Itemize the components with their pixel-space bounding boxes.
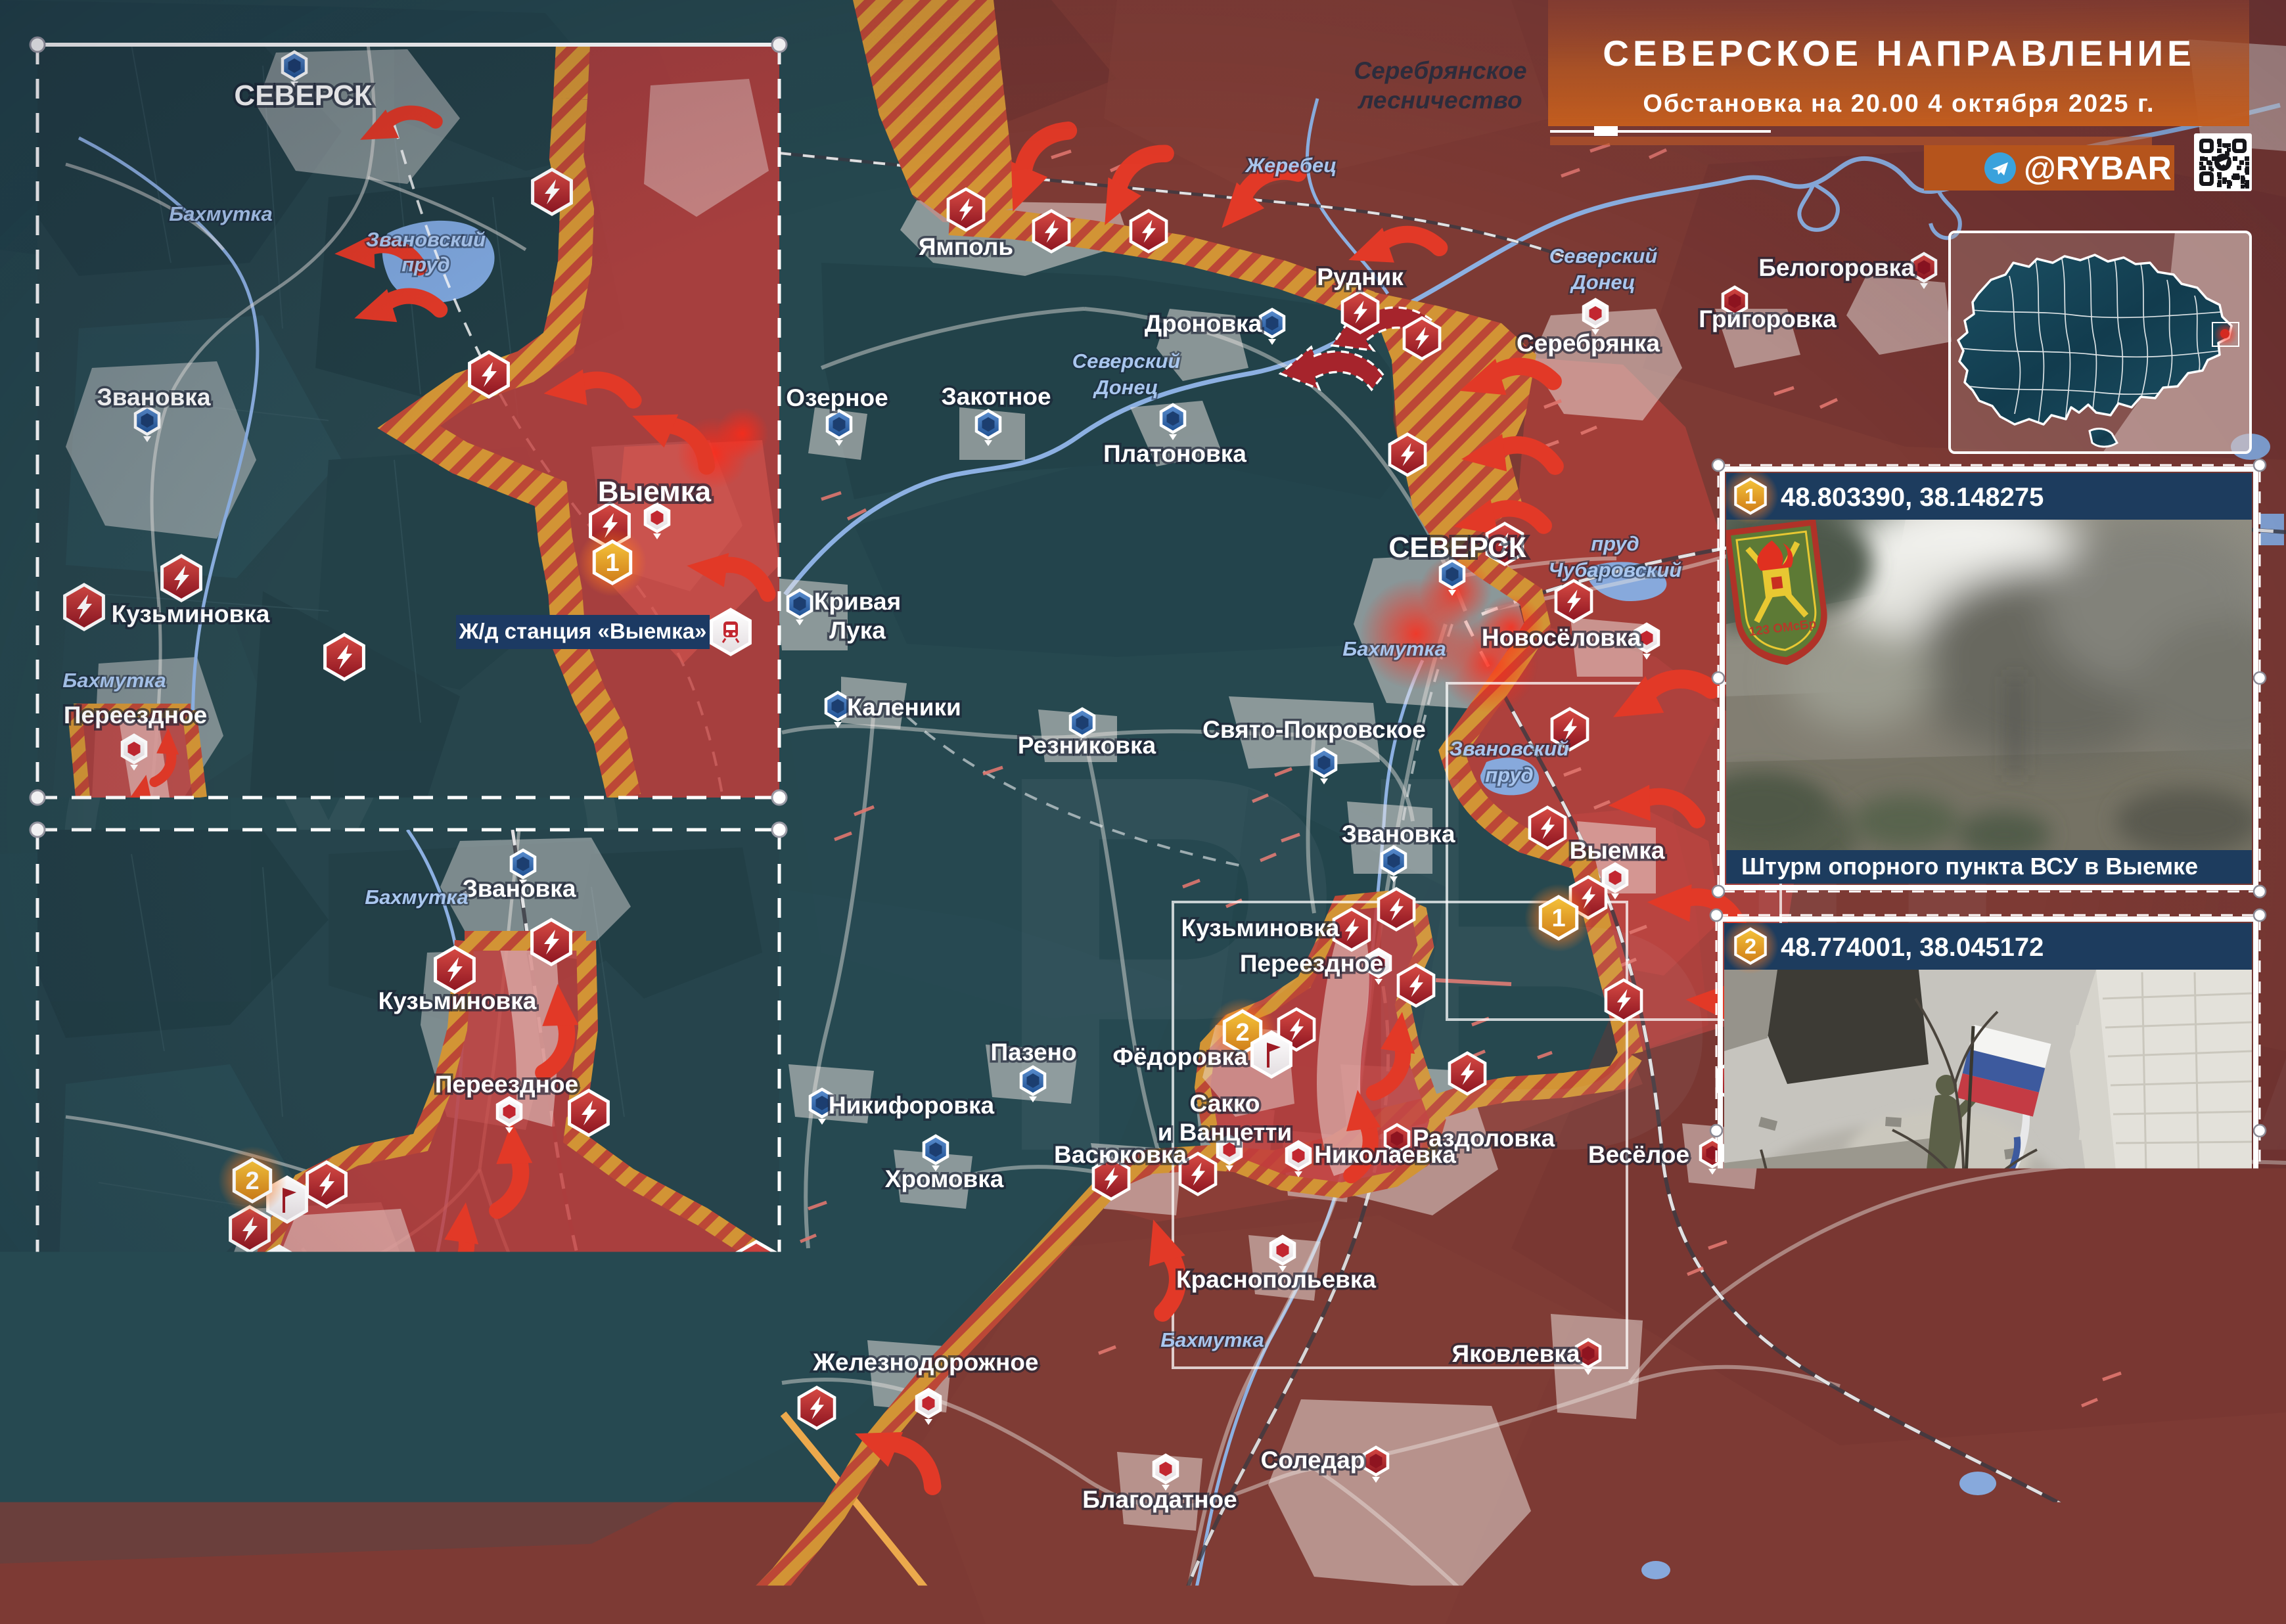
svg-text:СЕВЕРСКОЕ НАПРАВЛЕНИЕ: СЕВЕРСКОЕ НАПРАВЛЕНИЕ [1603, 33, 2195, 74]
svg-text:боевых действий: боевых действий [1701, 1476, 1880, 1501]
svg-text:территория: территория [1701, 1447, 1819, 1472]
svg-text:Штурм опорного пункта ВСУ в Вы: Штурм опорного пункта ВСУ в Выемке [1741, 853, 2198, 880]
svg-text:48.803390, 38.148275: 48.803390, 38.148275 [1781, 483, 2044, 512]
svg-text:укрепрайон: укрепрайон [2011, 1464, 2131, 1489]
svg-text:боестолкновения: боестолкновения [1701, 1554, 1880, 1579]
svg-text:Обстановка на 20.00 4 октября: Обстановка на 20.00 4 октября 2025 г. [1643, 90, 2155, 118]
svg-text:2: 2 [1745, 934, 1756, 958]
svg-text:@RYBAR: @RYBAR [2024, 150, 2172, 187]
svg-text:контроль сил РФ: контроль сил РФ [1701, 1415, 1875, 1440]
svg-text:территориальный: территориальный [2000, 1386, 2180, 1410]
svg-text:48.774001, 38.045172: 48.774001, 38.045172 [1781, 933, 2044, 962]
svg-text:контроль украинских сил: контроль украинских сил [2000, 1415, 2251, 1439]
svg-text:Боец ВС РФ с флагом России в Ф: Боец ВС РФ с флагом России в Федоровке [1741, 1307, 2249, 1334]
svg-text:1: 1 [1745, 484, 1756, 508]
svg-text:территориальный: территориальный [1701, 1386, 1886, 1411]
